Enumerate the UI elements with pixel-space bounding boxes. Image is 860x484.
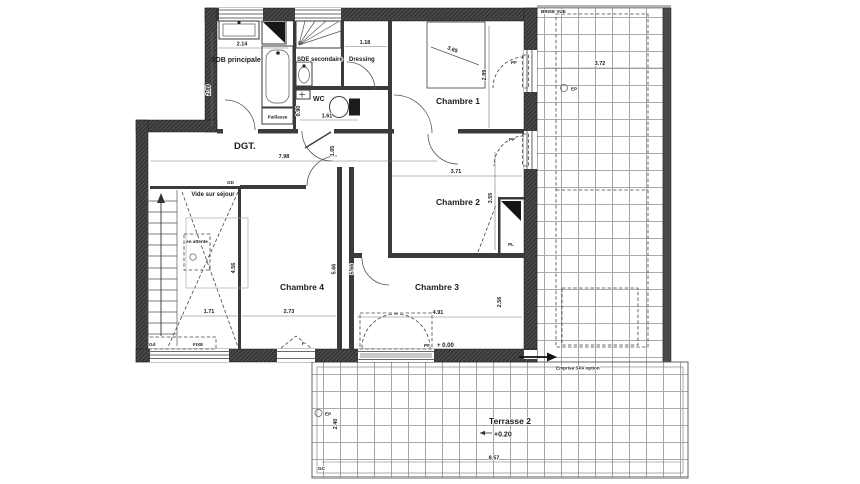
dim-wall-a: 5.66 xyxy=(332,264,338,275)
dim-ch3-h: 2.56 xyxy=(497,297,503,308)
terrace-right xyxy=(537,5,671,362)
faucet-icon xyxy=(302,64,305,67)
label-pf1: PF xyxy=(511,60,517,65)
dim-ch2-h: 3.55 xyxy=(488,193,494,204)
bed-icon xyxy=(427,22,485,88)
dim-sdb-w: 2.14 xyxy=(237,42,249,48)
door-arc-dressing xyxy=(347,62,375,90)
window-gap-pf2 xyxy=(524,131,537,169)
room-label-sdb: SDB principale xyxy=(211,57,261,64)
door-sill xyxy=(360,353,432,358)
closet-door-leaf xyxy=(478,205,496,252)
label-pf2: PF xyxy=(509,137,515,142)
dim-ch4-w: 2.73 xyxy=(284,309,295,315)
room-label-wc: WC xyxy=(313,96,325,103)
stairs xyxy=(148,190,177,346)
room-label-dgt: DGT. xyxy=(234,141,256,152)
dim-wc-h: 0.90 xyxy=(296,106,302,117)
bottom-window-annotations xyxy=(144,336,311,349)
room-label-chambre3: Chambre 3 xyxy=(415,282,459,292)
label-fixe: FIXE xyxy=(193,342,203,347)
room-label-sde: SDE secondaire xyxy=(297,57,343,63)
stair-treads xyxy=(148,201,177,334)
dim-ch2-w: 3.71 xyxy=(451,169,462,175)
label-level-zero: + 0.00 xyxy=(437,343,455,349)
door-arc-pf3-left xyxy=(362,314,396,348)
label-en-attente: en attente xyxy=(186,239,208,244)
dim-terrace-right-w: 3.72 xyxy=(595,61,606,67)
toilet-tank-icon xyxy=(349,99,360,116)
label-gc: GC xyxy=(318,466,326,471)
stair-arrow-head xyxy=(157,193,165,203)
dim-dgt-w: 7.98 xyxy=(279,154,290,160)
room-label-dressing: Dressing xyxy=(349,57,375,63)
dim-dressing-w: 1.18 xyxy=(360,40,371,46)
window-gap-pf1 xyxy=(524,50,537,92)
door-arc-sdb xyxy=(225,100,255,130)
faucet-icon xyxy=(237,21,240,24)
dim-terrasse2-w: 8.57 xyxy=(489,456,500,462)
window-gap-f xyxy=(277,349,315,362)
label-pf3: PF xyxy=(424,343,430,348)
label-ep-bottom: EP xyxy=(325,412,331,417)
door-arc-chambre3 xyxy=(362,258,389,285)
label-level-terrace: +0.20 xyxy=(494,432,512,439)
label-pl: PL xyxy=(508,242,514,247)
door-arc-wc xyxy=(302,131,332,161)
room-label-chambre1: Chambre 1 xyxy=(436,96,480,106)
closet-wall xyxy=(498,197,524,200)
wall-left-lower xyxy=(136,120,148,362)
dim-wc-w: 1.61 xyxy=(322,114,333,120)
door-arc-chambre1 xyxy=(394,95,432,133)
label-brise-vue: BRISE VUE xyxy=(541,9,566,14)
door-frame-pf3 xyxy=(360,313,432,349)
window-gap-fixe xyxy=(150,349,229,362)
floor-plan-drawing: SDB principale SDE secondaire Dressing W… xyxy=(0,0,860,484)
label-ep-right: EP xyxy=(571,87,577,92)
dim-ch1-h: 2.89 xyxy=(482,70,488,81)
floor-plan: SDB principale SDE secondaire Dressing W… xyxy=(0,0,860,484)
label-paillasse: Paillasse xyxy=(268,115,288,120)
label-vide-sur-sejour: Vide sur séjour xyxy=(191,192,235,198)
dim-sdb-h: 2.89 xyxy=(206,85,212,96)
room-label-chambre4: Chambre 4 xyxy=(280,282,324,292)
closet-wall xyxy=(498,197,501,255)
closet-shelf-icon xyxy=(501,201,521,221)
door-arc-pf1 xyxy=(493,57,524,88)
faucet-icon xyxy=(276,51,280,55)
wall-left-upper xyxy=(205,8,217,132)
room-label-chambre2: Chambre 2 xyxy=(436,197,480,207)
terrace-right-top-strip xyxy=(537,5,671,8)
dim-ch3-w: 4.91 xyxy=(433,310,444,316)
pending-fixture-icon xyxy=(190,254,196,260)
dim-vide-h: 4.56 xyxy=(231,263,237,274)
dim-vide-w: 1.71 xyxy=(204,309,215,315)
label-f: F xyxy=(302,341,305,346)
label-emprise-spa: Emprise SPA option xyxy=(556,366,600,371)
label-gd2: Gd xyxy=(149,342,156,347)
label-terrasse2: Terrasse 2 xyxy=(489,416,531,426)
label-gd: GD xyxy=(227,180,235,185)
dim-terrasse2-h: 2.40 xyxy=(333,419,339,430)
fixtures xyxy=(219,21,485,124)
door-arc-chambre2 xyxy=(428,134,458,164)
terrace-right-screen-wall xyxy=(663,8,671,362)
dim-dgt-h: 1.05 xyxy=(330,146,336,157)
dim-wall-b: 5.66 xyxy=(350,264,356,275)
door-leaf xyxy=(305,132,331,148)
door-arc-chambre4 xyxy=(307,156,337,186)
casement-window-symbol xyxy=(281,336,311,348)
